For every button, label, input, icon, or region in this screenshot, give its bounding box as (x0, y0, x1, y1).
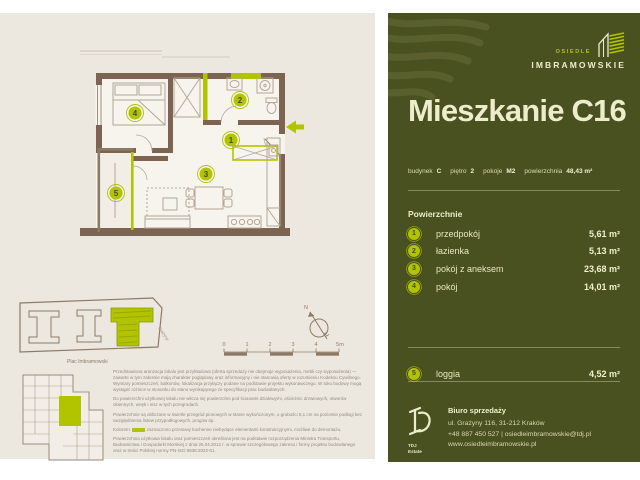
room-area: 14,01 m² (584, 282, 620, 292)
areas-header: Powierzchnie (408, 209, 462, 219)
svg-text:4: 4 (133, 109, 138, 118)
detail-rooms: pokojeM2 (483, 168, 515, 175)
detail-floor: piętro2 (450, 168, 474, 175)
list-item-loggia: 5 loggia 4,52 m² (408, 365, 620, 383)
room-name: pokój z aneksem (436, 264, 584, 274)
sales-office-title: Biuro sprzedaży (448, 406, 622, 415)
list-item: 2 łazienka 5,13 m² (408, 243, 620, 261)
tdj-estate-logo: TDJ Estate (408, 406, 434, 454)
tdj-estate-wordmark: TDJ Estate (408, 443, 434, 454)
plan-badge-1: 1 (223, 132, 240, 149)
svg-text:3: 3 (291, 342, 294, 348)
site-boundary (20, 298, 162, 352)
list-item: 4 pokój 14,01 m² (408, 278, 620, 296)
sales-office-address: ul. Grażyny 116, 31-212 Kraków (448, 419, 622, 430)
list-item: 1 przedpokój 5,61 m² (408, 225, 620, 243)
apartment-details: budynekC piętro2 pokojeM2 powierzchnia48… (408, 168, 622, 175)
estate-logo-name: IMBRAMOWSKIE (516, 60, 626, 70)
green-color-swatch (132, 428, 145, 432)
scale-labels: 0 1 2 3 4 5m (222, 342, 344, 348)
floorplan-panel: 1 2 3 4 5 Grażyny Plac (0, 13, 375, 459)
north-label: N (304, 305, 308, 311)
disclaimer-paragraph: Powierzchnie są obliczane w świetle prze… (113, 412, 363, 424)
window-room4 (96, 85, 103, 125)
detail-area: powierzchnia48,43 m² (524, 168, 592, 175)
room-name: łazienka (436, 246, 589, 256)
room-number-badge: 4 (408, 281, 420, 293)
list-item: 3 pokój z aneksem 23,68 m² (408, 260, 620, 278)
room-name: pokój (436, 282, 584, 292)
building-a (29, 311, 59, 343)
divider (408, 347, 620, 348)
place-label: Plac Imbramowski (67, 359, 108, 365)
entrance-arrow-icon (286, 121, 304, 134)
room-area: 4,52 m² (589, 369, 620, 379)
estate-logo-small-label: OSIEDLE (556, 49, 591, 55)
apartment-title: Mieszkanie C16 (408, 93, 630, 129)
room-area: 5,13 m² (589, 246, 620, 256)
divider (408, 381, 620, 382)
svg-text:0: 0 (222, 342, 225, 348)
svg-text:1: 1 (245, 342, 248, 348)
disclaimer-paragraph: Do powierzchni użytkowej lokalu nie wlic… (113, 396, 363, 408)
svg-text:5m: 5m (336, 342, 344, 348)
plan-badge-5: 5 (108, 185, 125, 202)
sales-office-contact: TDJ Estate Biuro sprzedaży ul. Grażyny 1… (408, 406, 622, 454)
svg-text:1: 1 (229, 136, 234, 145)
sales-office-website: www.osiedleimbramowskie.pl (448, 440, 622, 451)
legal-disclaimer: Przedstawiona aranżacja lokalu jest przy… (113, 369, 363, 458)
room-area: 5,61 m² (589, 229, 620, 239)
room-name: loggia (436, 369, 589, 379)
room-number-badge: 2 (408, 245, 420, 257)
svg-text:2: 2 (238, 96, 243, 105)
estate-building-icon (596, 31, 626, 58)
disclaimer-paragraph: Powierzchnia użytkowa lokalu oraz pomies… (113, 436, 363, 454)
plan-badge-4: 4 (127, 105, 144, 122)
room-number-badge: 3 (408, 263, 420, 275)
info-panel: OSIEDLE IMBRAMOWSKIE Mieszkanie C16 budy… (388, 13, 640, 462)
site-plan: Grażyny Plac Imbramowski (15, 295, 183, 373)
room-number-badge: 1 (408, 228, 420, 240)
tdj-blackletter-d-icon (408, 406, 432, 436)
svg-text:3: 3 (204, 170, 209, 179)
svg-text:4: 4 (314, 342, 317, 348)
building-b (77, 310, 101, 342)
plan-badge-2: 2 (232, 92, 249, 109)
brochure-page: 1 2 3 4 5 Grażyny Plac (0, 0, 640, 480)
room-area: 23,68 m² (584, 264, 620, 274)
room-number-badge: 5 (408, 368, 420, 380)
entry-closet (233, 146, 277, 160)
plan-badge-3: 3 (198, 166, 215, 183)
building-floor-overview (15, 372, 115, 467)
detail-building: budynekC (408, 168, 441, 175)
disclaimer-paragraph-color-key: Koloremzaznaczono przesuwy kuchenne nieb… (113, 427, 363, 433)
svg-text:5: 5 (114, 189, 119, 198)
room-list: 1 przedpokój 5,61 m² 2 łazienka 5,13 m² … (408, 225, 620, 295)
estate-logo: OSIEDLE IMBRAMOWSKIE (516, 31, 626, 70)
room-name: przedpokój (436, 229, 589, 239)
divider (408, 190, 620, 191)
sales-office-phone-email: +48 887 450 527 | osiedleimbramowskie@td… (448, 430, 622, 441)
svg-text:2: 2 (268, 342, 271, 348)
apartment-floorplan: 1 2 3 4 5 (78, 48, 310, 270)
scale-bar: 0 1 2 3 4 5m (220, 340, 350, 360)
disclaimer-paragraph: Przedstawiona aranżacja lokalu jest przy… (113, 369, 363, 393)
building-c-highlighted (111, 308, 153, 346)
highlighted-apartment (59, 396, 81, 426)
